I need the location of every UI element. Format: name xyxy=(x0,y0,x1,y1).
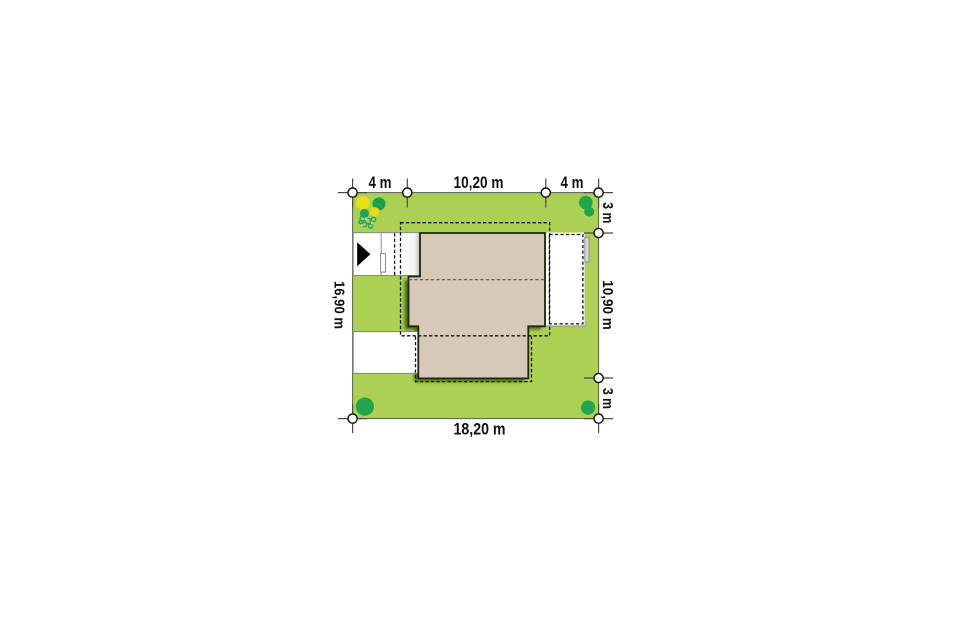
svg-text:18,20 m: 18,20 m xyxy=(454,421,506,439)
svg-text:4 m: 4 m xyxy=(561,174,584,192)
svg-text:4 m: 4 m xyxy=(369,174,392,192)
svg-text:3 m: 3 m xyxy=(599,388,616,409)
svg-text:16,90 m: 16,90 m xyxy=(331,281,348,329)
svg-text:10,20 m: 10,20 m xyxy=(454,174,504,192)
svg-text:3 m: 3 m xyxy=(599,202,616,223)
svg-text:10,90 m: 10,90 m xyxy=(599,280,616,330)
